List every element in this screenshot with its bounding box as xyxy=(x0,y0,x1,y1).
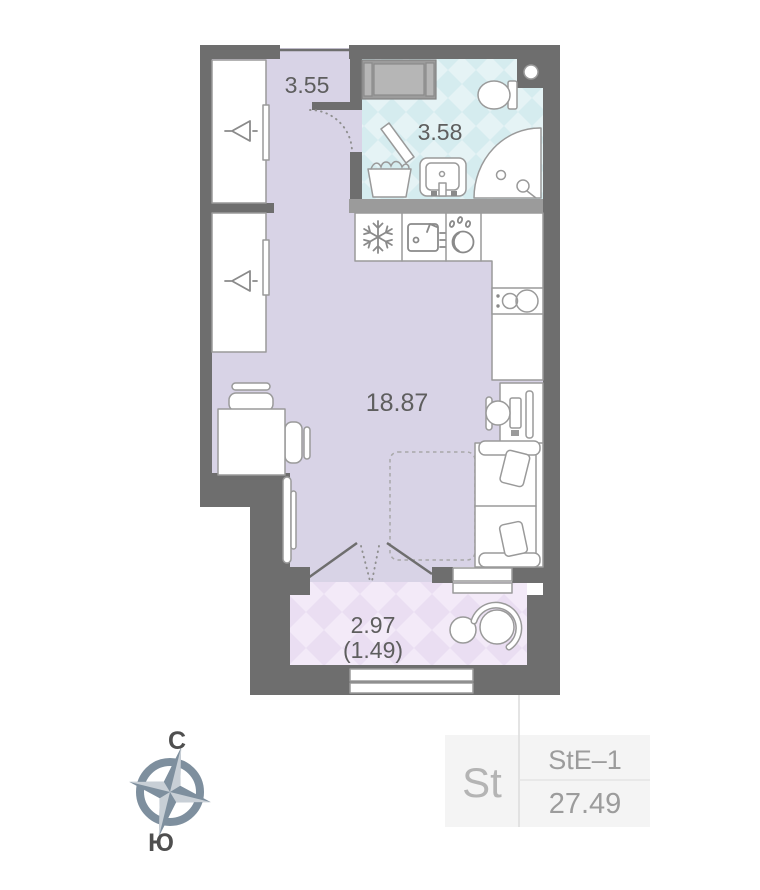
dining-chair-right xyxy=(285,422,310,463)
sofa xyxy=(475,441,543,567)
wall-kitchen-divider xyxy=(349,199,543,213)
wardrobe-door-1 xyxy=(263,105,269,160)
wardrobe-2 xyxy=(212,213,266,352)
balcony-area-reduced-label: (1.49) xyxy=(343,637,403,663)
monitor xyxy=(526,391,533,438)
wall-left-band xyxy=(200,473,290,507)
wall-cabinet-right xyxy=(512,567,543,583)
balcony-area-label: 2.97 xyxy=(351,612,396,638)
wall-bath-shelf xyxy=(312,102,362,110)
balcony-window xyxy=(350,669,473,693)
floor-plan-page: 3.55 3.58 18.87 2.97 (1.49) С Ю St StE–1… xyxy=(0,0,760,890)
bathroom-sink xyxy=(420,158,466,196)
dining-chair-top xyxy=(229,383,273,411)
window-cabinet xyxy=(453,568,512,593)
stove-icon xyxy=(492,288,543,314)
wardrobe-1 xyxy=(212,60,266,203)
wardrobe-door-2 xyxy=(263,240,269,295)
wall-balcony-left xyxy=(290,567,310,595)
wall-left xyxy=(200,45,212,507)
toilet xyxy=(478,81,517,109)
hallway-area-label: 3.55 xyxy=(285,72,330,98)
vent-pipe xyxy=(524,65,538,79)
wall-door-right xyxy=(432,567,453,583)
compass-north-label: С xyxy=(168,727,186,755)
info-panel: St StE–1 27.49 xyxy=(445,695,650,827)
wall-bath-lower xyxy=(350,152,362,201)
compass-south-label: Ю xyxy=(148,829,174,857)
wall-right xyxy=(543,45,560,595)
living-room-area-label: 18.87 xyxy=(366,389,429,417)
dining-table xyxy=(218,409,285,475)
wall-top-right xyxy=(349,45,560,59)
balcony-table xyxy=(480,610,514,644)
washing-machine xyxy=(362,60,436,99)
layout-code-label: StE–1 xyxy=(548,745,622,775)
apartment-type-label: St xyxy=(462,759,502,806)
wall-closet-stub xyxy=(212,203,274,213)
bathroom-area-label: 3.58 xyxy=(418,119,463,145)
total-area-label: 27.49 xyxy=(549,788,622,820)
compass-rose: С Ю xyxy=(118,727,222,857)
wall-bath-upper xyxy=(350,58,362,102)
floor-plan-canvas: 3.55 3.58 18.87 2.97 (1.49) С Ю St StE–1… xyxy=(0,0,760,890)
